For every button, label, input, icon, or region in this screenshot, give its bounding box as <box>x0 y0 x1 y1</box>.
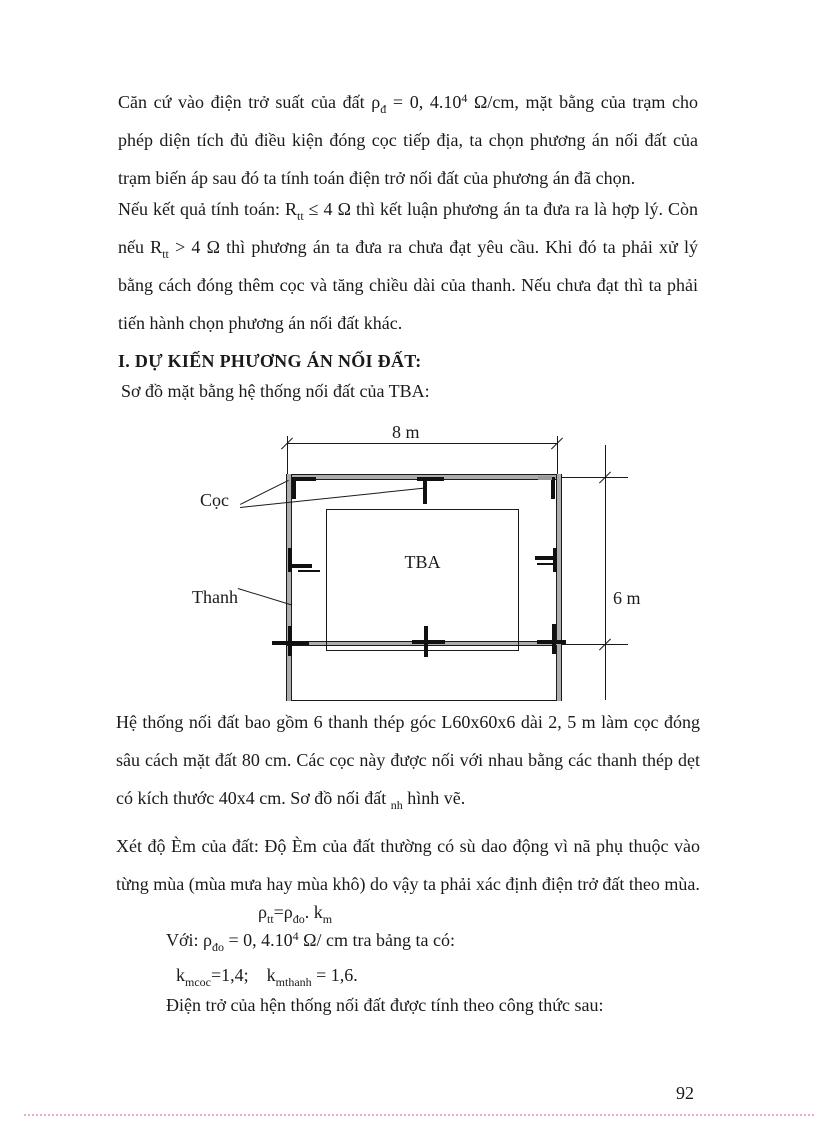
paragraph-system: Hệ thống nối đất bao gồm 6 thanh thép gó… <box>116 703 700 817</box>
formula-rho-tt: ρtt=ρđo. km <box>258 897 332 927</box>
dim-6m-witness-bottom <box>562 644 628 645</box>
electrode-bottom-middle-flange <box>412 640 445 644</box>
paragraph-resistance: Điện trở của hện thống nối đất được tính… <box>166 990 603 1020</box>
formula-rho-do: Với: ρđo = 0, 4.104 Ω/ cm tra bảng ta có… <box>166 925 455 955</box>
dim-8m-line <box>287 443 557 444</box>
electrode-bottom-right <box>552 624 556 654</box>
electrode-pointer-1 <box>240 480 289 505</box>
r-tt-subscript: tt <box>162 247 169 261</box>
electrode-top-left-flange <box>292 477 316 481</box>
bar-pointer <box>238 588 292 605</box>
nh-subscript: nh <box>391 798 403 812</box>
electrode-mid-right-flange <box>535 556 555 560</box>
paragraph-intro-text: Căn cứ vào điện trở suất của đất ρ <box>118 92 380 112</box>
electrode-mid-right-flange2 <box>537 563 557 565</box>
electrode-top-right <box>551 477 555 499</box>
tba-label: TBA <box>326 550 519 574</box>
electrode-top-right-flange <box>538 476 552 480</box>
electrode-top-middle-flange <box>417 477 444 481</box>
electrode-bottom-left-flange <box>272 641 309 645</box>
document-page: Căn cứ vào điện trở suất của đất ρđ = 0,… <box>0 0 816 1123</box>
paragraph-intro: Căn cứ vào điện trở suất của đất ρđ = 0,… <box>118 83 698 197</box>
dim-8m-label: 8 m <box>392 420 420 444</box>
electrode-top-middle <box>423 477 427 504</box>
bar-callout-label: Thanh <box>192 585 238 609</box>
electrode-mid-right <box>553 548 557 572</box>
r-tt-subscript: tt <box>297 209 304 223</box>
dim-6m-line <box>605 445 606 700</box>
electrode-mid-left <box>288 548 292 572</box>
diagram-caption: Sơ đồ mặt bằng hệ thống nối đất của TBA: <box>121 372 430 410</box>
right-bar <box>556 474 562 701</box>
electrode-bottom-right-flange <box>537 640 566 644</box>
page-break-dots <box>24 1114 814 1116</box>
tba-rect <box>326 509 519 651</box>
dim-6m-label: 6 m <box>613 586 641 610</box>
paragraph-moisture: Xét độ Èm của đất: Độ Èm của đất thường … <box>116 827 700 903</box>
electrode-mid-left-flange <box>288 564 312 568</box>
electrode-callout-label: Cọc <box>200 488 229 512</box>
paragraph-criteria: Nếu kết quả tính toán: Rtt ≤ 4 Ω thì kết… <box>118 190 698 342</box>
electrode-mid-left-flange2 <box>298 570 320 572</box>
formula-k-coefficients: kmcoc=1,4; kmthanh = 1,6. <box>176 960 358 990</box>
dim-6m-witness-top <box>562 477 628 478</box>
left-bar <box>286 474 292 701</box>
page-number: 92 <box>676 1080 694 1106</box>
